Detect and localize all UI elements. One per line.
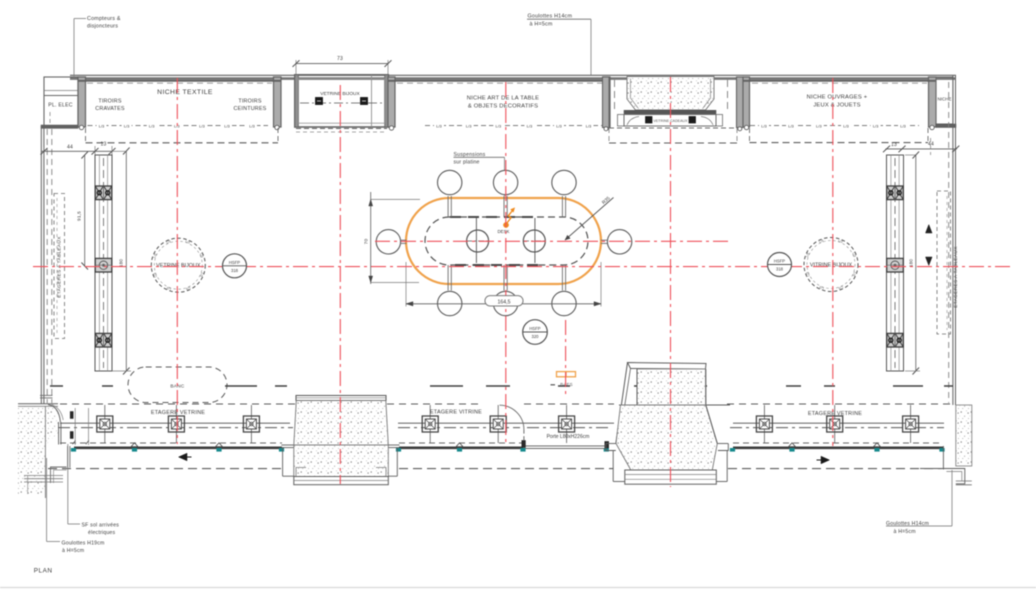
svg-text:disjoncteurs: disjoncteurs	[87, 24, 118, 30]
svg-text:L/3: L/3	[873, 123, 879, 128]
svg-text:ETAGERES A TABLEAUX: ETAGERES A TABLEAUX	[953, 246, 959, 308]
svg-text:L/3: L/3	[99, 123, 105, 128]
svg-text:180: 180	[908, 259, 913, 268]
svg-text:CRAVATES: CRAVATES	[95, 106, 125, 112]
svg-text:L/3: L/3	[249, 123, 255, 128]
svg-text:L/3: L/3	[149, 123, 155, 128]
svg-text:sur platine: sur platine	[454, 160, 480, 166]
svg-text:L/3: L/3	[199, 123, 205, 128]
svg-text:DESK: DESK	[498, 229, 510, 234]
svg-text:Goulottes H14cm: Goulottes H14cm	[528, 14, 573, 20]
svg-text:44: 44	[67, 145, 73, 151]
svg-text:180: 180	[119, 259, 124, 268]
svg-text:PLAN: PLAN	[34, 568, 53, 575]
svg-text:91,5: 91,5	[77, 211, 82, 221]
svg-text:électriques: électriques	[88, 530, 115, 536]
svg-text:PL. ELEC: PL. ELEC	[48, 103, 72, 109]
svg-text:HSFP: HSFP	[229, 260, 240, 265]
svg-text:L/3: L/3	[556, 123, 562, 128]
svg-text:Porte L80xH226cm: Porte L80xH226cm	[547, 434, 590, 440]
svg-text:NICHE TEXTILE: NICHE TEXTILE	[157, 89, 213, 96]
svg-text:Goulottes H19cm: Goulottes H19cm	[62, 541, 105, 547]
svg-text:TIROIRS: TIROIRS	[98, 99, 121, 105]
svg-text:L/3: L/3	[224, 123, 230, 128]
svg-text:NICHE OUVRAGES +: NICHE OUVRAGES +	[807, 95, 868, 101]
svg-text:L/3: L/3	[124, 123, 130, 128]
svg-text:& OBJETS DECORATIFS: & OBJETS DECORATIFS	[468, 103, 538, 109]
svg-text:à H=5cm: à H=5cm	[530, 22, 553, 28]
svg-text:L/3: L/3	[527, 123, 533, 128]
svg-text:SF sol arrivées: SF sol arrivées	[82, 523, 120, 529]
svg-text:L/3: L/3	[843, 123, 849, 128]
svg-text:320: 320	[532, 334, 540, 339]
svg-text:CEINTURES: CEINTURES	[234, 106, 267, 112]
svg-text:VITRINE BIJOUX: VITRINE BIJOUX	[810, 262, 853, 268]
svg-text:L/3: L/3	[788, 123, 794, 128]
svg-text:13: 13	[101, 142, 107, 148]
svg-text:TIROIRS: TIROIRS	[238, 99, 261, 105]
svg-text:L/3: L/3	[466, 123, 472, 128]
svg-text:L/3: L/3	[761, 123, 767, 128]
svg-text:44: 44	[928, 142, 934, 148]
svg-text:ETAGERE VETRINE: ETAGERE VETRINE	[151, 410, 205, 416]
svg-text:HSFP: HSFP	[529, 326, 540, 331]
svg-text:HSFP: HSFP	[774, 259, 785, 264]
svg-text:L/3: L/3	[436, 123, 442, 128]
svg-text:JEUX & JOUETS: JEUX & JOUETS	[813, 102, 860, 108]
svg-text:318: 318	[231, 268, 239, 273]
svg-text:318: 318	[776, 267, 784, 272]
svg-text:L/3: L/3	[586, 123, 592, 128]
svg-text:ETAGERE VITRINE: ETAGERE VITRINE	[430, 410, 482, 416]
svg-text:NICHE: NICHE	[937, 97, 951, 102]
svg-text:L/3: L/3	[900, 123, 906, 128]
svg-text:73: 73	[337, 56, 343, 62]
svg-text:13: 13	[891, 142, 897, 148]
svg-text:164,5: 164,5	[498, 299, 511, 305]
svg-text:Compteurs &: Compteurs &	[87, 16, 121, 22]
svg-text:L/3: L/3	[816, 123, 822, 128]
svg-text:à H=5cm: à H=5cm	[62, 548, 84, 554]
svg-text:NICHE ART DE LA TABLE: NICHE ART DE LA TABLE	[467, 96, 539, 102]
svg-text:à H=5cm: à H=5cm	[894, 529, 916, 535]
svg-text:70: 70	[364, 239, 370, 245]
svg-text:L/3: L/3	[496, 123, 502, 128]
